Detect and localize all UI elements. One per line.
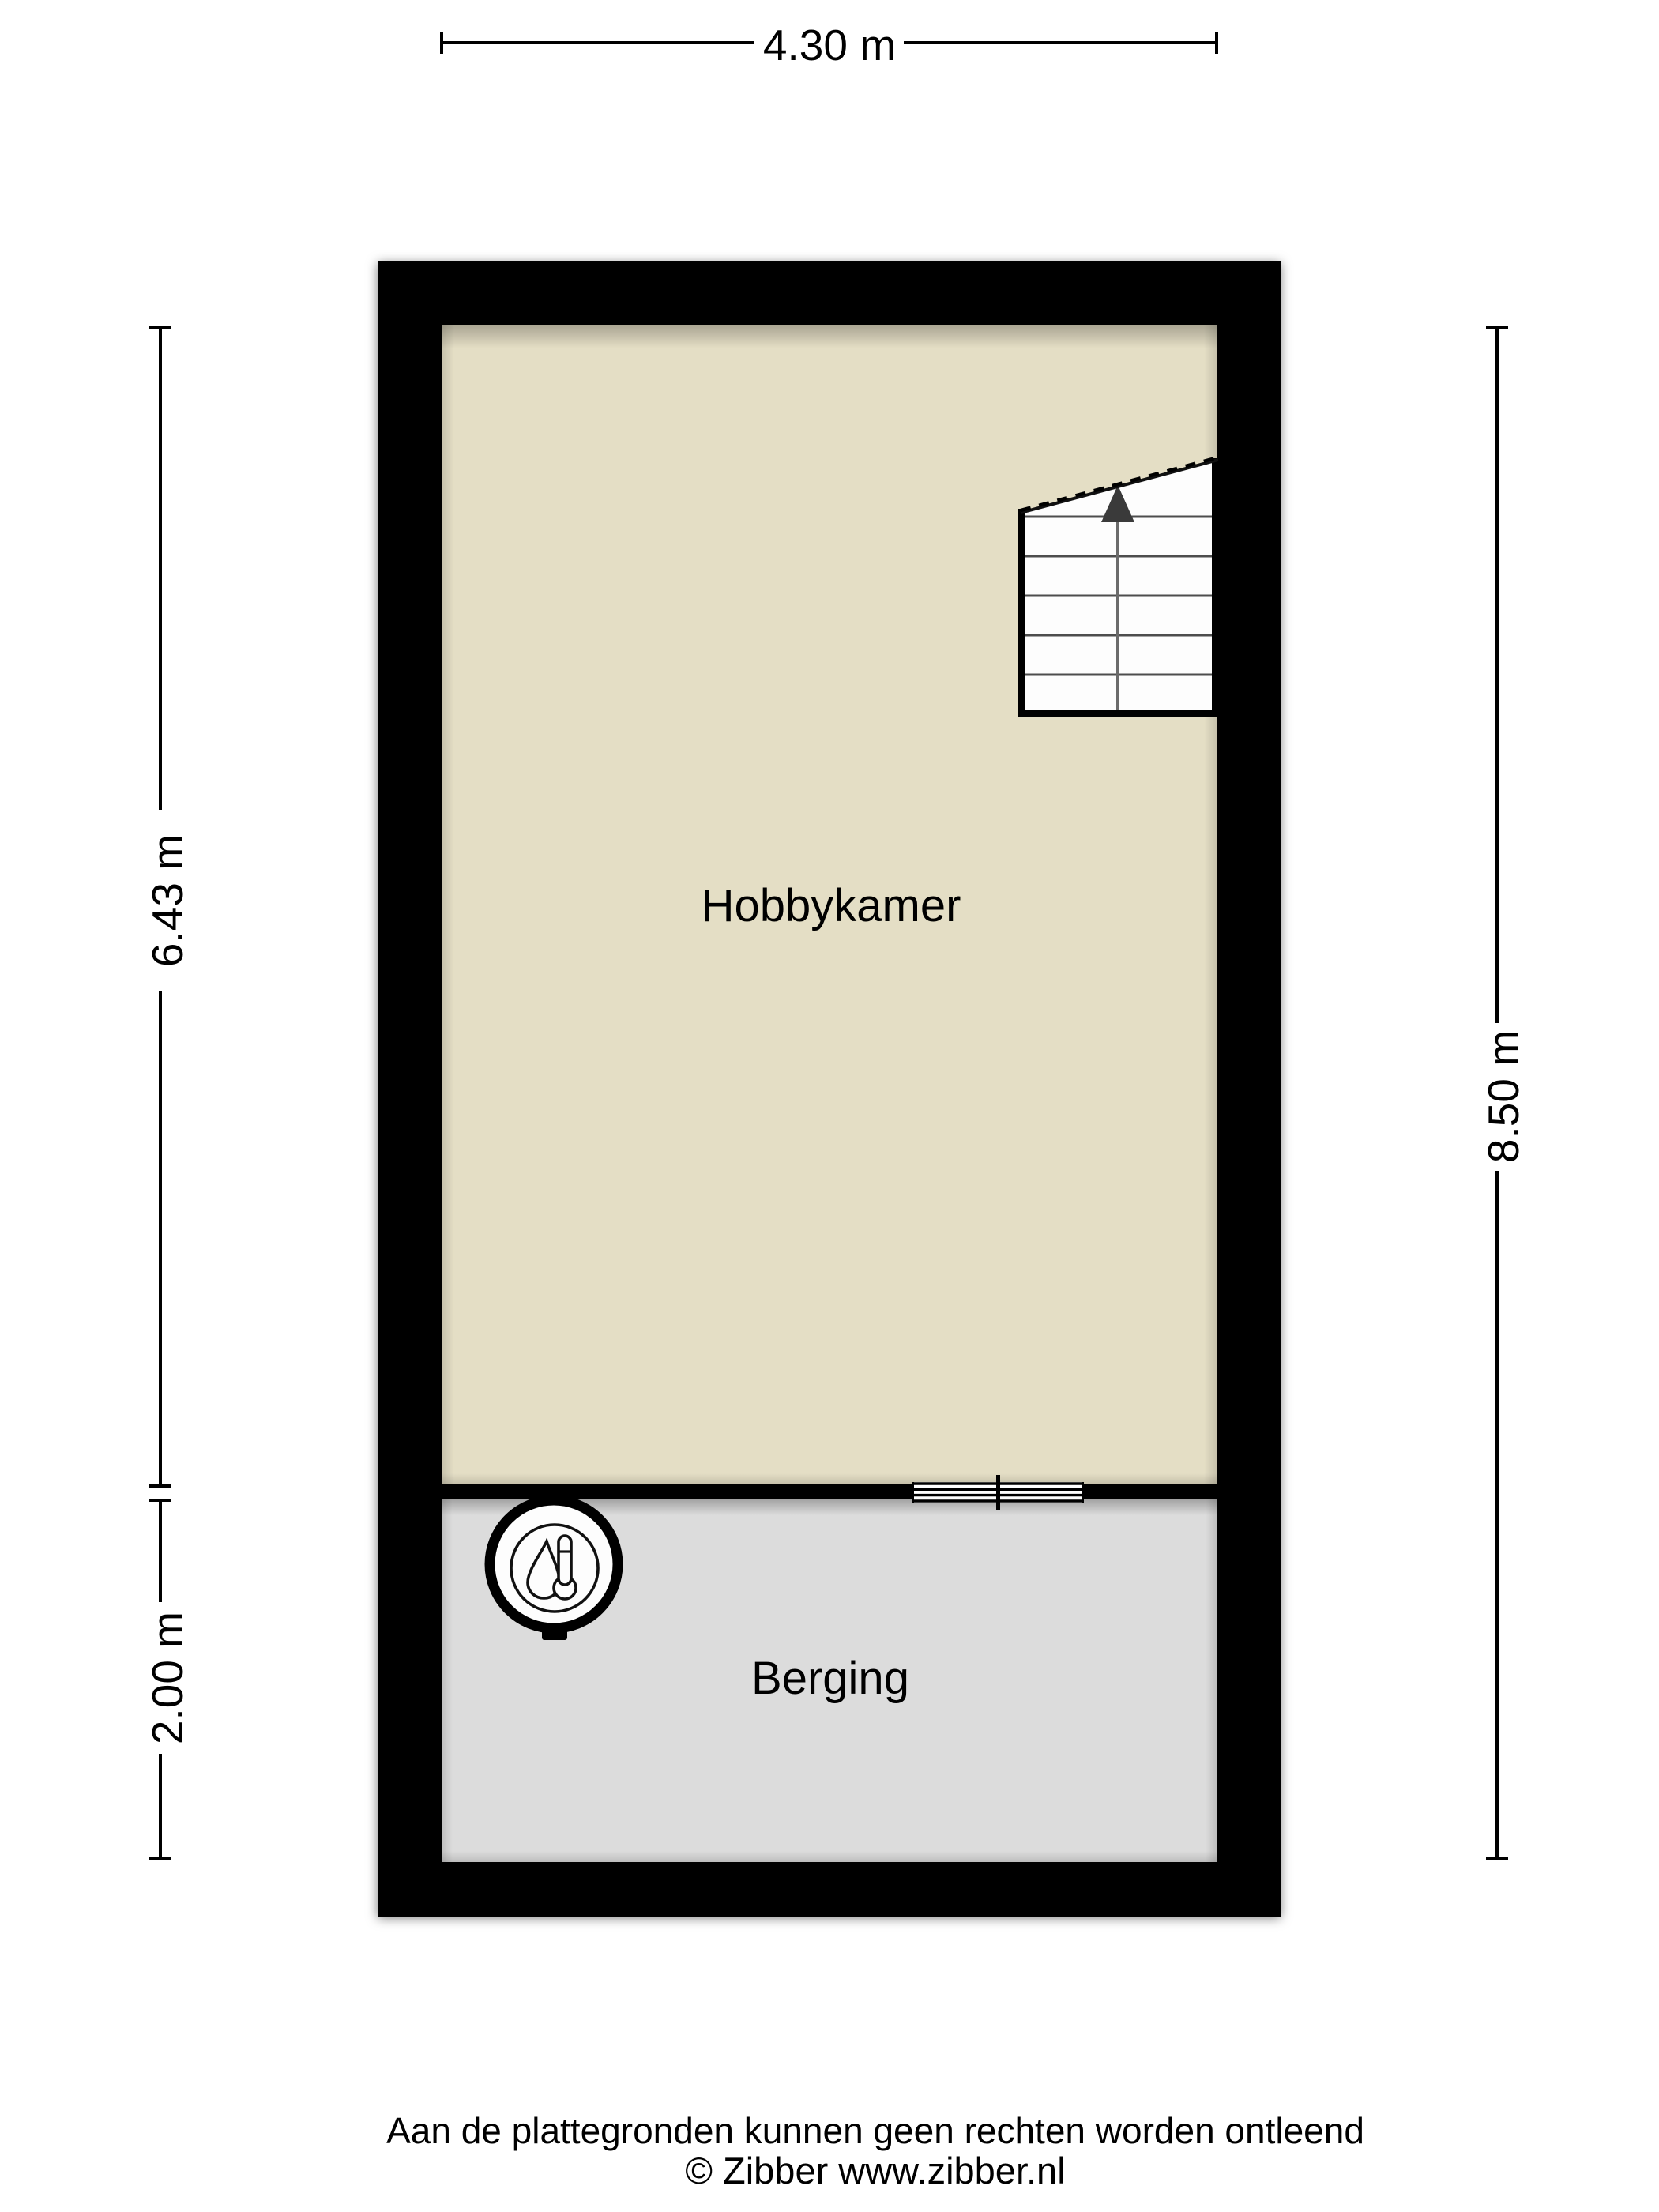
svg-text:Hobbykamer: Hobbykamer (702, 880, 961, 931)
svg-text:8.50 m: 8.50 m (1479, 1030, 1528, 1163)
svg-text:2.00 m: 2.00 m (143, 1612, 192, 1744)
svg-text:Berging: Berging (751, 1653, 909, 1704)
svg-text:© Zibber www.zibber.nl: © Zibber www.zibber.nl (685, 2150, 1065, 2191)
svg-text:4.30 m: 4.30 m (763, 21, 896, 70)
svg-text:6.43 m: 6.43 m (143, 834, 192, 967)
svg-text:Aan de plattegronden kunnen ge: Aan de plattegronden kunnen geen rechten… (386, 2110, 1364, 2151)
